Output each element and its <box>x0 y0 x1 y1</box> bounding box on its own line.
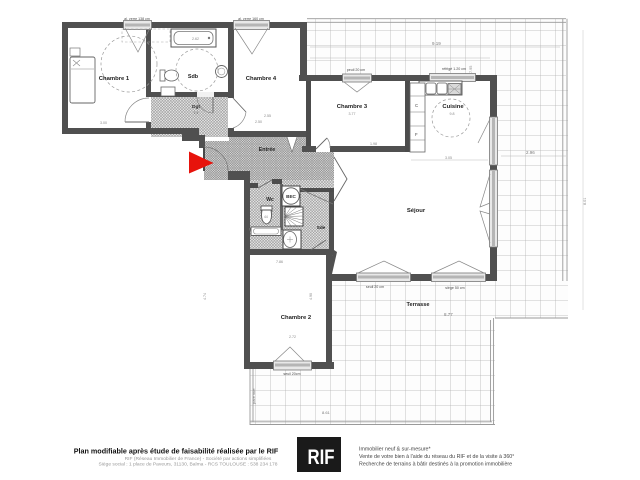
svg-text:C: C <box>415 103 418 108</box>
svg-text:Plan modifiable après étude de: Plan modifiable après étude de faisabili… <box>74 447 279 456</box>
svg-text:1.4: 1.4 <box>194 111 199 115</box>
svg-text:al. verre 138 cm: al. verre 138 cm <box>124 17 150 21</box>
svg-text:1.98: 1.98 <box>370 142 377 146</box>
svg-text:3.05: 3.05 <box>445 156 452 160</box>
svg-text:RIF (Réseau Immobilier de Fran: RIF (Réseau Immobilier de France) - Soci… <box>125 456 272 462</box>
svg-text:Chambre 4: Chambre 4 <box>246 76 277 82</box>
svg-text:8.01: 8.01 <box>583 198 587 205</box>
svg-text:Sde: Sde <box>317 225 326 230</box>
svg-text:9.8: 9.8 <box>450 112 455 116</box>
svg-text:RIF: RIF <box>308 446 335 469</box>
svg-text:al. verre 160 cm: al. verre 160 cm <box>238 17 264 21</box>
svg-text:7.86: 7.86 <box>276 260 283 264</box>
svg-text:9.19: 9.19 <box>432 41 441 46</box>
svg-text:2.62: 2.62 <box>192 37 199 41</box>
svg-text:peuil 20 cm: peuil 20 cm <box>347 68 365 72</box>
svg-text:Siège social : 1 place de Pave: Siège social : 1 place de Paveurs, 31130… <box>99 462 278 468</box>
svg-text:8.77: 8.77 <box>444 312 453 317</box>
svg-text:44: 44 <box>264 215 268 219</box>
svg-text:Dgt: Dgt <box>192 104 200 110</box>
svg-text:4.90: 4.90 <box>309 293 313 300</box>
svg-text:2.55: 2.55 <box>264 114 271 118</box>
svg-text:Wc: Wc <box>266 197 274 203</box>
svg-text:siège 50 cm: siège 50 cm <box>445 286 464 290</box>
svg-text:3.00: 3.00 <box>100 121 107 125</box>
svg-text:2.96: 2.96 <box>526 150 535 155</box>
svg-text:Sdb: Sdb <box>188 74 199 80</box>
svg-text:4.74: 4.74 <box>203 293 207 300</box>
svg-text:seuil 20 cm: seuil 20 cm <box>366 285 384 289</box>
svg-text:Cuisine: Cuisine <box>442 104 464 110</box>
svg-text:Terrasse: Terrasse <box>407 302 430 308</box>
svg-text:Séjour: Séjour <box>407 208 426 214</box>
svg-text:2.72: 2.72 <box>289 335 296 339</box>
svg-text:3.77: 3.77 <box>349 112 356 116</box>
svg-text:Chambre 2: Chambre 2 <box>281 315 312 321</box>
svg-text:seuil 20cm: seuil 20cm <box>283 372 300 376</box>
svg-text:7.95: 7.95 <box>469 66 473 73</box>
svg-text:pare vue: pare vue <box>251 388 256 404</box>
svg-text:Recherche de terrains à bâtir: Recherche de terrains à bâtir destinés à… <box>359 462 512 468</box>
svg-text:F: F <box>415 132 418 137</box>
svg-text:Immobilier neuf & sur-mesure*: Immobilier neuf & sur-mesure* <box>359 447 431 453</box>
svg-text:Entrée: Entrée <box>259 147 276 153</box>
svg-text:réfrigé 1.20 cm: réfrigé 1.20 cm <box>442 67 466 71</box>
svg-text:Chambre 3: Chambre 3 <box>337 104 368 110</box>
svg-text:8.61: 8.61 <box>322 410 331 415</box>
svg-text:2.50: 2.50 <box>255 120 262 124</box>
svg-text:Vente de votre bien à l'aide d: Vente de votre bien à l'aide du réseau d… <box>359 454 514 460</box>
svg-text:Chambre 1: Chambre 1 <box>99 76 130 82</box>
svg-text:BEC: BEC <box>286 194 296 199</box>
